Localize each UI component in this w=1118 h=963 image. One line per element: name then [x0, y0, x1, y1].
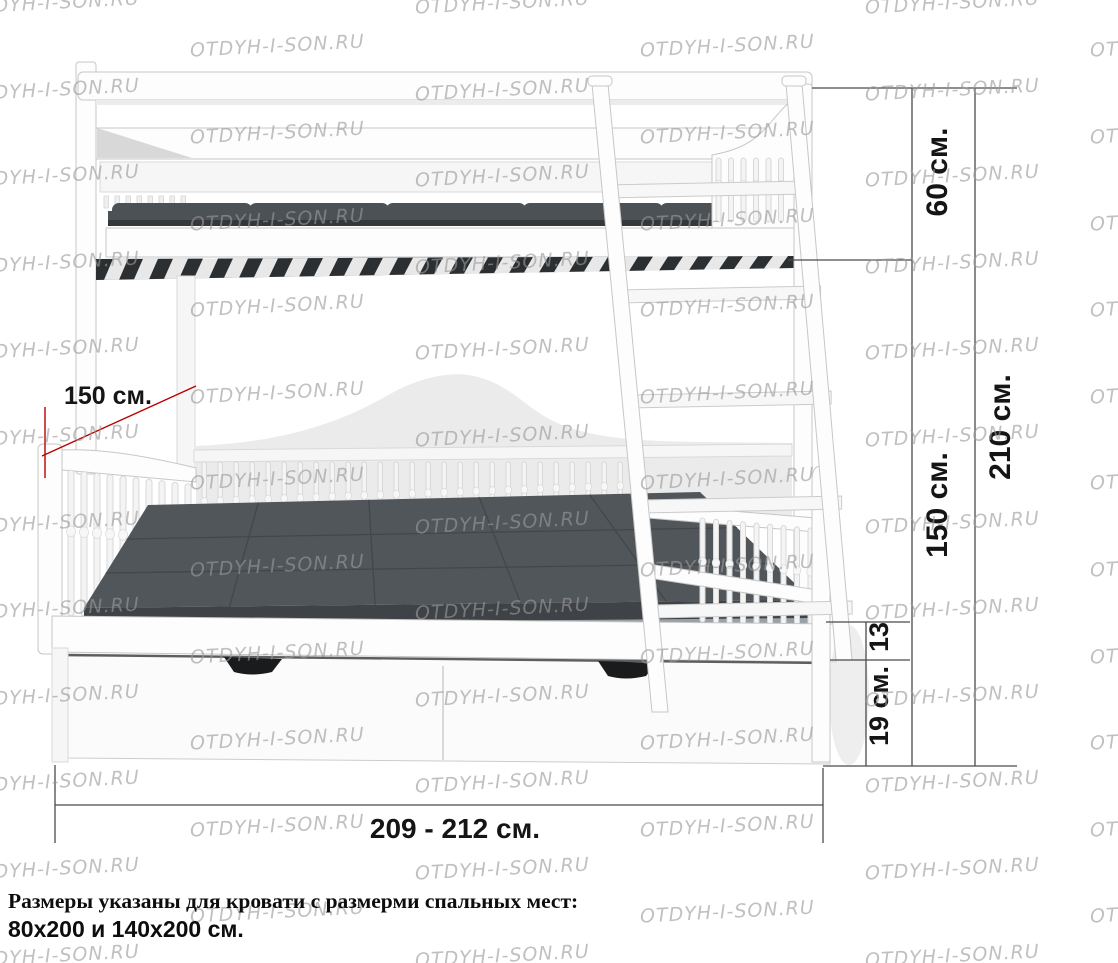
- spindle-bulb: [699, 557, 707, 566]
- spindle-bulb: [377, 491, 384, 499]
- bunk-bed-dimension-diagram: 60 см. 150 см. 210 см. 13 19 см. 209 - 2…: [0, 0, 1118, 963]
- spindle-bulb: [281, 494, 288, 502]
- spindle-bulb: [80, 527, 89, 538]
- rail-shadow: [96, 100, 796, 105]
- spindle-bulb: [361, 491, 368, 499]
- spindle-bulb: [441, 488, 448, 496]
- lower-height-label: 150 см.: [921, 452, 954, 558]
- spindle-bulb: [425, 489, 432, 497]
- bed-length-label: 209 - 212 см.: [370, 813, 540, 844]
- spindle-bulb: [793, 566, 801, 575]
- spindle-bulb: [457, 488, 464, 496]
- spindle-bulb: [712, 558, 720, 567]
- upper-mattress: [108, 203, 800, 226]
- middle-back-post: [177, 276, 195, 472]
- upper-mattress-edge: [108, 220, 796, 226]
- spindle-bulb: [393, 490, 400, 498]
- ladder-rung: [617, 286, 821, 303]
- upper-base-board: [106, 228, 806, 257]
- spindle-bulb: [119, 529, 128, 540]
- spindle-bulb: [585, 483, 592, 491]
- bed-depth-label: 150 см.: [64, 382, 152, 410]
- caption-line1: Размеры указаны для кровати с размерми с…: [8, 888, 578, 915]
- spindle-bulb: [537, 485, 544, 493]
- ladder-right-hook: [782, 76, 806, 86]
- spindle-bulb: [601, 482, 608, 490]
- caption: Размеры указаны для кровати с размерми с…: [8, 888, 578, 943]
- spindle-bulb: [473, 487, 480, 495]
- spindle-bulb: [617, 482, 624, 490]
- platform-thickness-label: 13: [864, 622, 894, 652]
- upper-left-post: [76, 62, 96, 474]
- mini-spindle: [104, 196, 109, 208]
- spindle: [68, 470, 74, 616]
- spindle: [81, 472, 87, 616]
- bed-diagram-svg: 60 см. 150 см. 210 см. 13 19 см. 209 - 2…: [0, 0, 1118, 963]
- ladder-left-hook: [588, 76, 612, 86]
- spindle-bulb: [297, 494, 304, 502]
- spindle-bulb: [106, 529, 115, 540]
- bed-illustration: [38, 62, 869, 765]
- upper-height-label: 60 см.: [921, 128, 954, 217]
- spindle-bulb: [753, 562, 761, 571]
- upper-top-rail: [78, 72, 812, 100]
- drawer-height-label: 19 см.: [864, 666, 894, 746]
- lower-bed: [38, 276, 869, 765]
- spindle-bulb: [489, 487, 496, 495]
- drawer-box: [68, 654, 830, 764]
- slats: [104, 256, 788, 280]
- spindle-bulb: [409, 490, 416, 498]
- spindle-bulb: [553, 484, 560, 492]
- upper-guard-rail: [96, 128, 798, 159]
- left-leg: [52, 648, 68, 762]
- spindle-bulb: [505, 486, 512, 494]
- spindle-bulb: [521, 485, 528, 493]
- lower-headboard-crest: [40, 450, 196, 482]
- spindle-bulb: [67, 526, 76, 537]
- spindle-bulb: [780, 565, 788, 574]
- total-height-label: 210 см.: [984, 374, 1017, 480]
- spindle-bulb: [313, 493, 320, 501]
- spindle-bulb: [93, 528, 102, 539]
- spindle-bulb: [726, 560, 734, 569]
- spindle-bulb: [329, 493, 336, 501]
- spindle-bulb: [345, 492, 352, 500]
- spindle-bulb: [569, 484, 576, 492]
- spindle-bulb: [265, 495, 272, 503]
- spindle-bulb: [739, 561, 747, 570]
- caption-line2: 80х200 и 140х200 см.: [8, 915, 578, 943]
- spindle-bulb: [766, 563, 774, 572]
